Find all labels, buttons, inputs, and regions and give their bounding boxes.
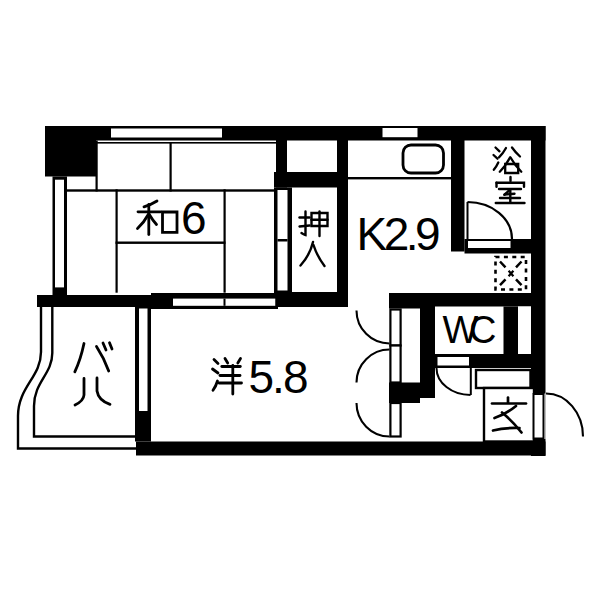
svg-text:K2.9: K2.9	[357, 208, 441, 260]
svg-text:6: 6	[181, 192, 207, 244]
svg-text:WC: WC	[443, 309, 497, 351]
svg-text:5.8: 5.8	[249, 351, 309, 403]
